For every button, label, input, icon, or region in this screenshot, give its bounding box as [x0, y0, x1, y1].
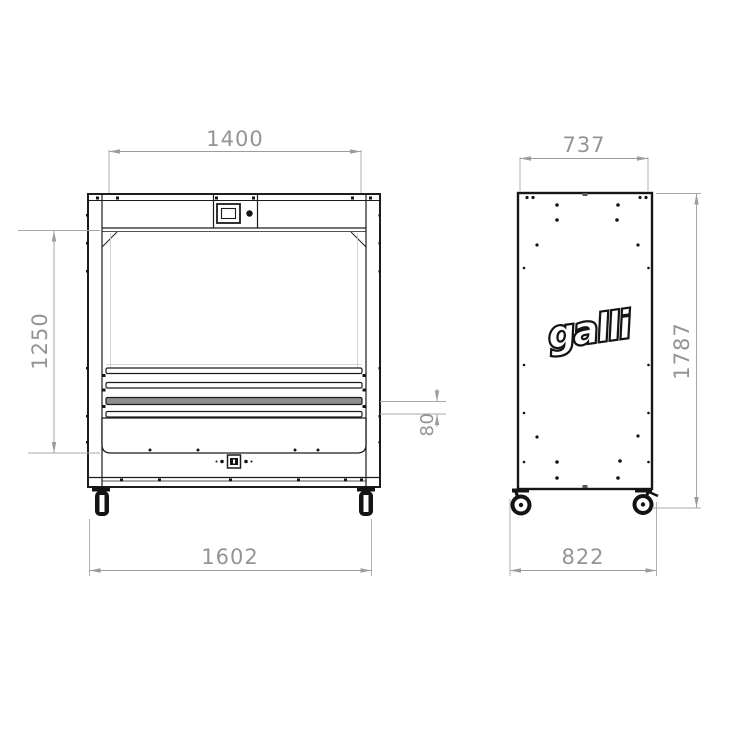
front-view: 1400 1250 80 1602	[18, 127, 446, 576]
side-view: galli galli 737 1787	[510, 133, 701, 576]
dim-label-overall-height: 1787	[670, 322, 694, 379]
power-button[interactable]	[246, 210, 252, 216]
roller-bar	[106, 383, 362, 389]
dim-label-bar-gap: 80	[417, 413, 438, 437]
technical-drawing-canvas: 1400 1250 80 1602	[0, 0, 750, 750]
dimension-1787: 1787	[652, 194, 701, 509]
control-display-screen	[222, 209, 236, 219]
dimension-1602: 1602	[90, 519, 372, 576]
dim-label-overall-width: 1602	[201, 545, 258, 569]
dim-label-overall-depth: 822	[561, 545, 604, 569]
side-caster-right	[635, 489, 659, 514]
dim-label-opening-height: 1250	[28, 312, 52, 369]
roller-bar	[106, 398, 362, 405]
roller-bar	[106, 412, 362, 418]
side-caster-left	[512, 489, 530, 514]
drawing-sheet: 1400 1250 80 1602	[0, 0, 750, 750]
roller-bar	[106, 368, 362, 374]
lower-panel	[102, 418, 366, 453]
dimension-80: 80	[380, 389, 446, 436]
front-caster-right	[357, 487, 375, 516]
dim-label-depth: 737	[562, 133, 605, 157]
dim-label-inner-width: 1400	[206, 127, 263, 151]
dimension-737: 737	[520, 133, 648, 191]
front-caster-left	[92, 487, 110, 516]
side-top-tick	[583, 193, 588, 196]
dimension-1400: 1400	[109, 127, 361, 193]
side-bottom-tick	[583, 485, 588, 488]
